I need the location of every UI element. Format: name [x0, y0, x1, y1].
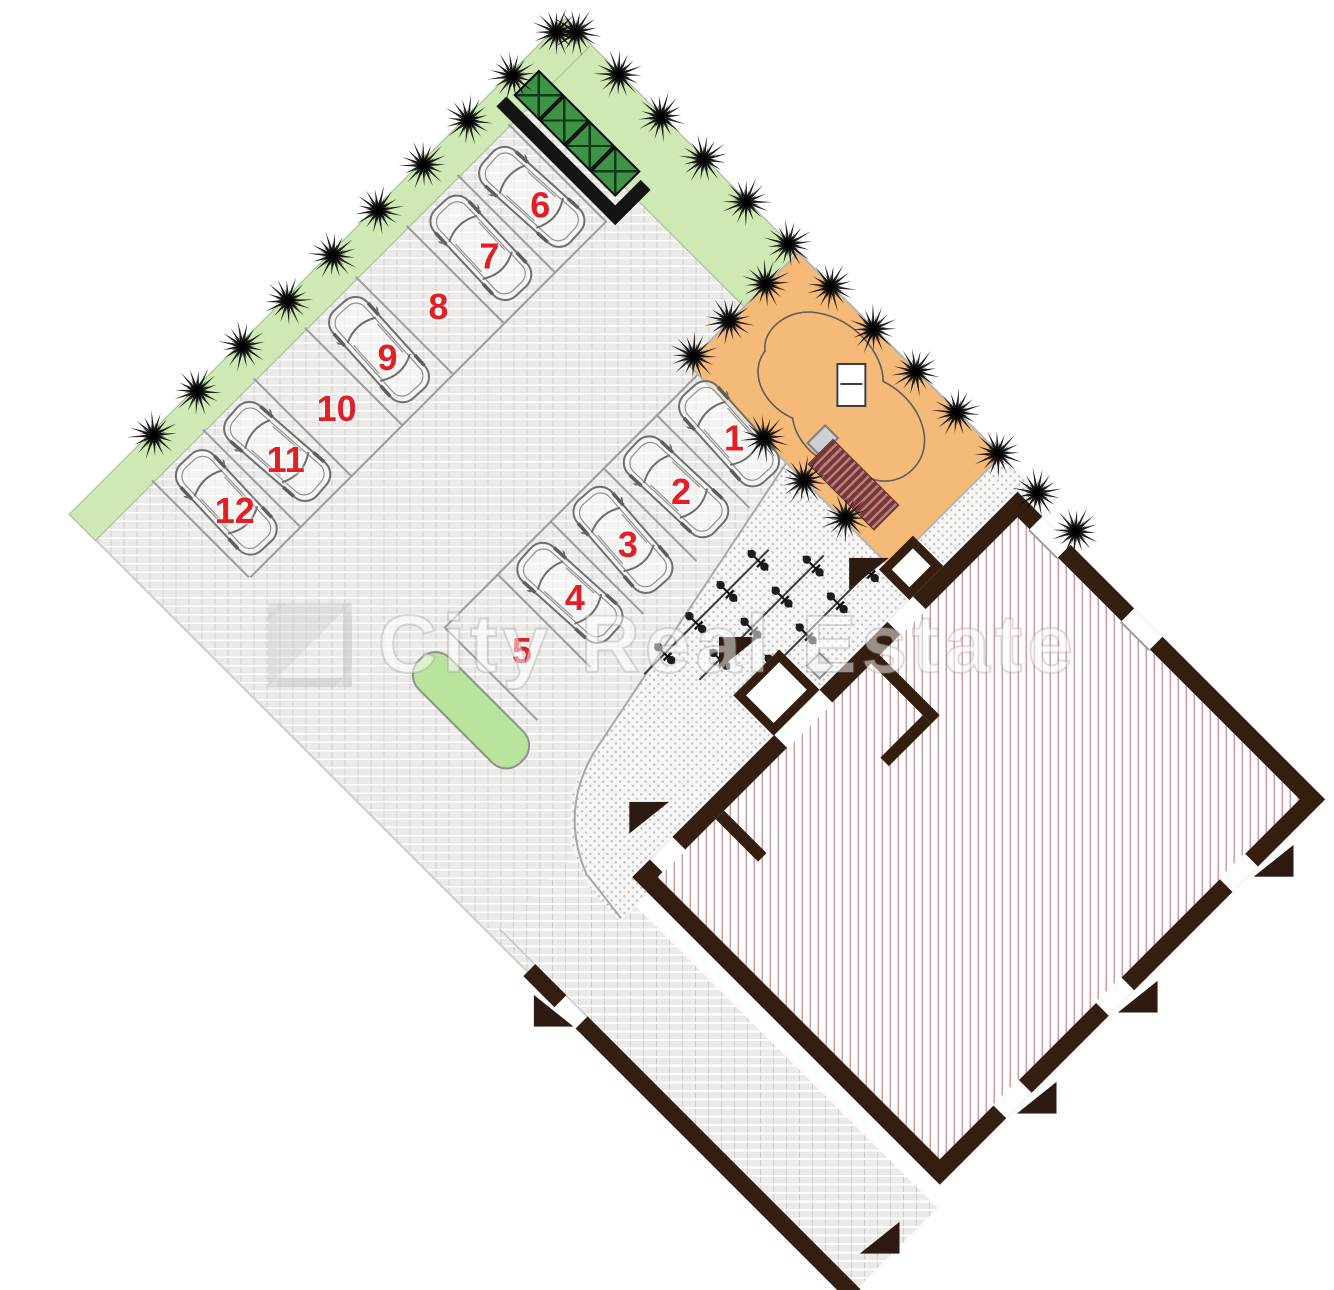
parking-space-label: 5 [512, 633, 532, 669]
parking-space-label: 8 [428, 289, 448, 325]
parking-space-label: 9 [378, 340, 398, 376]
parking-space-label: 10 [317, 391, 357, 427]
door-opening [1219, 853, 1258, 892]
interior-wall [716, 811, 767, 862]
interior-wall [880, 715, 931, 766]
interior-wall [871, 655, 940, 724]
window-opening [1120, 608, 1162, 650]
parking-space-label: 6 [530, 187, 550, 223]
parking-space-label: 11 [267, 442, 305, 478]
parking-space-label: 4 [565, 580, 585, 616]
parking-space-label: 1 [724, 421, 744, 457]
parking-space-label: 12 [215, 493, 255, 529]
rotated-site-plan: 123456789101112 [13, 18, 1334, 1290]
playground-bench-icon [836, 363, 866, 407]
parking-space-label: 7 [479, 238, 499, 274]
parking-space-label: 3 [618, 527, 638, 563]
site-plan-canvas: 123456789101112 City Real Estate [0, 0, 1334, 1290]
parking-space-label: 2 [671, 474, 691, 510]
